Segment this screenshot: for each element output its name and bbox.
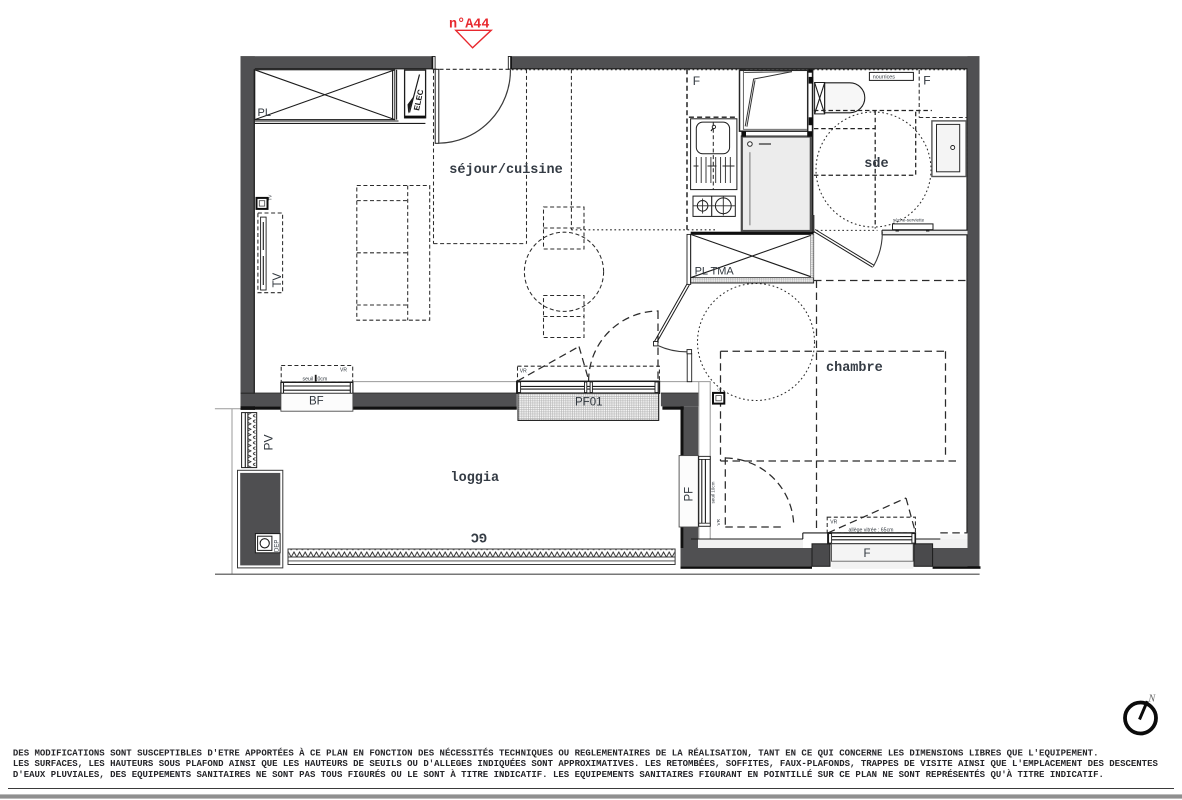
svg-text:nourrices: nourrices — [873, 75, 895, 81]
svg-text:sde: sde — [864, 157, 888, 172]
svg-text:DEP: DEP — [275, 540, 281, 552]
svg-text:PL TMA: PL TMA — [695, 266, 735, 278]
svg-text:F: F — [923, 74, 930, 88]
svg-text:seuil 10cm: seuil 10cm — [711, 481, 716, 503]
svg-text:LES SURFACES, LES HAUTEURS SOU: LES SURFACES, LES HAUTEURS SOUS PLAFOND … — [13, 758, 1159, 769]
svg-text:PV: PV — [262, 434, 276, 450]
svg-text:VR: VR — [830, 520, 837, 526]
svg-text:PL: PL — [258, 107, 271, 119]
svg-text:VR: VR — [520, 369, 527, 375]
svg-text:PF01: PF01 — [575, 397, 603, 409]
svg-text:N: N — [1148, 694, 1157, 705]
svg-text:D'EAUX PLUVIALES, DES EQUIPEME: D'EAUX PLUVIALES, DES EQUIPEMENTS SANITA… — [13, 769, 1104, 780]
svg-text:DES MODIFICATIONS SONT SUSCEPT: DES MODIFICATIONS SONT SUSCEPTIBLES D'ET… — [13, 748, 1099, 759]
svg-text:loggia: loggia — [451, 471, 500, 486]
svg-text:séjour/cuisine: séjour/cuisine — [449, 163, 562, 178]
svg-text:TV: TV — [268, 194, 273, 201]
svg-text:F: F — [693, 74, 700, 88]
svg-text:TV: TV — [272, 272, 284, 287]
svg-text:VR: VR — [716, 518, 721, 525]
svg-text:PF: PF — [684, 487, 696, 502]
svg-text:chambre: chambre — [826, 361, 883, 376]
svg-text:BF: BF — [309, 396, 324, 408]
svg-text:c: c — [716, 388, 721, 390]
svg-text:GC: GC — [471, 529, 487, 544]
svg-text:VR: VR — [340, 368, 347, 374]
svg-text:F: F — [864, 548, 871, 560]
